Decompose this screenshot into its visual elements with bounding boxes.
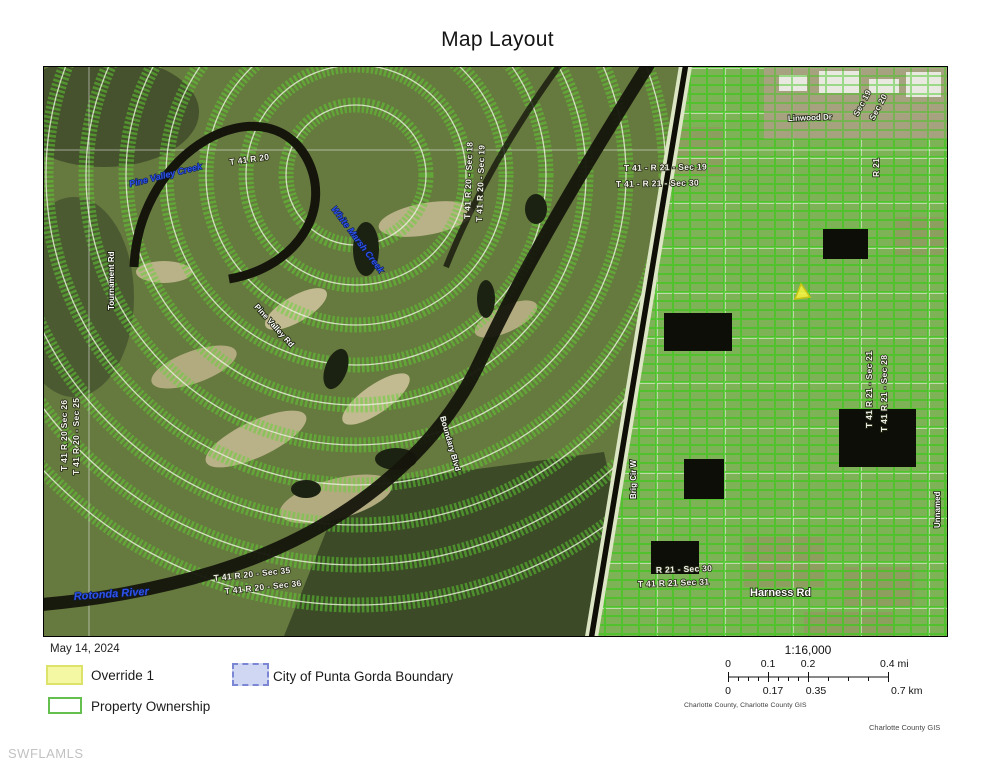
map-label-r21-sec30: R 21 - Sec 30	[656, 563, 713, 575]
mi-tick-02: 0.2	[801, 658, 816, 670]
km-tick-0: 0	[725, 685, 731, 697]
map-label-tournament-rd: Tournament Rd	[107, 251, 116, 310]
map-label-r21: R 21	[871, 158, 881, 177]
scalebar-mi-labels: 0 0.1 0.2 0.4 mi	[683, 658, 953, 670]
scalebar-bar	[728, 672, 890, 682]
gis-credit: Charlotte County GIS	[869, 723, 940, 732]
map-attribution: Charlotte County, Charlotte County GIS	[684, 702, 807, 709]
map-label-sec26-vertical: T 41 R 20 Sec 26	[59, 400, 69, 471]
map-label-sec19: T 41 - R 21 - Sec 19	[624, 162, 707, 173]
map-label-sec28-vertical: T 41 R 21 - Sec 28	[879, 355, 889, 432]
map-area[interactable]: Pine Valley Creek White Marsh Creek Roto…	[43, 66, 948, 637]
scale-ratio: 1:16,000	[728, 643, 888, 657]
mi-tick-0: 0	[725, 658, 731, 670]
legend-label-city-boundary: City of Punta Gorda Boundary	[273, 669, 453, 684]
scalebar: 1:16,000 0 0.1 0.2 0.4 mi 0 0.17 0.35 0.…	[683, 643, 953, 713]
mi-tick-01: 0.1	[761, 658, 776, 670]
legend: May 14, 2024 Override 1 City of Punta Go…	[43, 641, 523, 731]
km-tick-07: 0.7 km	[891, 685, 923, 697]
map-label-sec21-vertical: T 41 R 21 - Sec 21	[864, 351, 874, 428]
km-tick-017: 0.17	[763, 685, 783, 697]
page-title: Map Layout	[0, 28, 995, 52]
map-label-unnamed-rd: Unnamed	[933, 491, 942, 528]
map-label-sec30: T 41 - R 21 - Sec 30	[616, 178, 699, 189]
map-label-linwood-dr: Linwood Dr	[788, 112, 832, 123]
legend-label-override: Override 1	[91, 668, 154, 683]
map-label-harness-rd: Harness Rd	[750, 587, 811, 599]
override-swatch	[46, 665, 83, 685]
map-image: Pine Valley Creek White Marsh Creek Roto…	[44, 67, 947, 636]
map-date: May 14, 2024	[50, 643, 120, 655]
map-label-sec25-vertical: T 41 R 20 - Sec 25	[71, 398, 81, 475]
city-boundary-swatch	[232, 663, 269, 686]
mi-tick-04: 0.4 mi	[880, 658, 909, 670]
scalebar-km-labels: 0 0.17 0.35 0.7 km	[683, 685, 953, 697]
map-layout-page: Map Layout	[0, 0, 995, 768]
km-tick-035: 0.35	[806, 685, 826, 697]
legend-label-property-ownership: Property Ownership	[91, 699, 210, 714]
map-label-brig-cir-w: Brig Cir W	[629, 459, 638, 499]
property-ownership-swatch	[48, 697, 82, 714]
swflamls-watermark: SWFLAMLS	[8, 746, 84, 761]
